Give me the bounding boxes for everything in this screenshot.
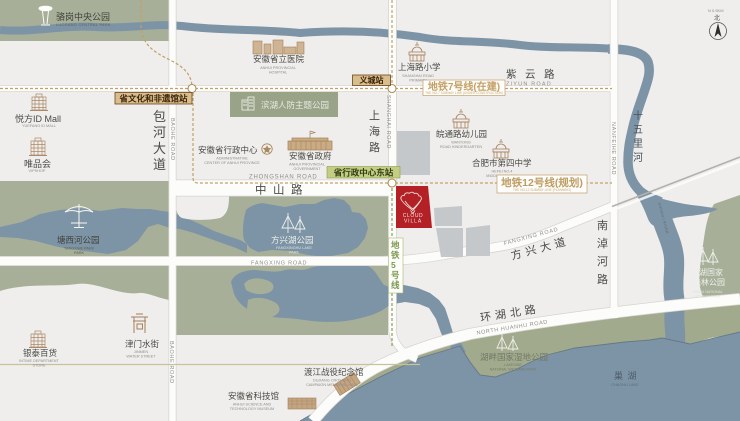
svg-text:安徽省政府: 安徽省政府 xyxy=(289,151,332,161)
svg-text:安徽省立医院: 安徽省立医院 xyxy=(253,54,305,64)
svg-text:CHAOHU LAKE: CHAOHU LAKE xyxy=(611,383,639,387)
svg-text:WANTONG: WANTONG xyxy=(451,141,471,145)
svg-text:ANHUI SCIENCE AND: ANHUI SCIENCE AND xyxy=(233,403,272,407)
svg-text:线: 线 xyxy=(391,280,400,290)
svg-text:ZIYUN ROAD: ZIYUN ROAD xyxy=(506,82,552,88)
svg-text:皖通路幼儿园: 皖通路幼儿园 xyxy=(436,129,487,139)
svg-text:SHANGHAI ROAD: SHANGHAI ROAD xyxy=(402,74,434,78)
svg-text:森林公园: 森林公园 xyxy=(693,277,725,287)
svg-text:LUOGANG CENTRAL PARK: LUOGANG CENTRAL PARK xyxy=(56,23,111,27)
svg-text:ROAD KINDERGARTEN: ROAD KINDERGARTEN xyxy=(440,145,482,149)
svg-text:安徽省科技馆: 安徽省科技馆 xyxy=(228,391,279,401)
svg-text:津门水街: 津门水街 xyxy=(125,339,160,349)
svg-text:上: 上 xyxy=(369,109,380,122)
svg-text:SHANGHAI ROAD: SHANGHAI ROAD xyxy=(385,95,391,149)
svg-text:FANGXING ROAD: FANGXING ROAD xyxy=(251,261,307,267)
svg-text:LAKESIDE: LAKESIDE xyxy=(504,363,522,367)
svg-text:TECHNOLOGY MUSEUM: TECHNOLOGY MUSEUM xyxy=(230,407,274,411)
svg-text:HEFEI NO.4: HEFEI NO.4 xyxy=(491,170,512,174)
svg-text:THE NO.12 SUBWAY LINE (PLANNIN: THE NO.12 SUBWAY LINE (PLANNING) xyxy=(513,188,571,192)
svg-text:大: 大 xyxy=(153,141,166,156)
svg-text:路: 路 xyxy=(597,273,608,286)
svg-text:上海路小学: 上海路小学 xyxy=(398,62,441,72)
svg-text:JINMEN: JINMEN xyxy=(134,350,148,354)
svg-text:NANFEIHE ROAD: NANFEIHE ROAD xyxy=(610,122,616,175)
svg-text:STORE: STORE xyxy=(32,364,45,368)
svg-text:银泰百货: 银泰百货 xyxy=(23,348,58,358)
svg-text:YUEFANG ID MALL: YUEFANG ID MALL xyxy=(22,124,56,128)
svg-text:VILLA: VILLA xyxy=(404,219,422,225)
svg-text:PARK: PARK xyxy=(74,251,85,255)
svg-text:BINHU NATIONAL: BINHU NATIONAL xyxy=(693,290,723,294)
svg-text:中山路: 中山路 xyxy=(255,183,309,197)
svg-text:滨湖国家: 滨湖国家 xyxy=(691,267,723,277)
svg-text:河: 河 xyxy=(633,152,643,164)
svg-text:唯品会: 唯品会 xyxy=(24,158,51,169)
svg-text:河: 河 xyxy=(153,125,166,140)
svg-text:方兴湖公园: 方兴湖公园 xyxy=(271,235,314,245)
svg-text:CAMPAIGN MEMORIAL HALL: CAMPAIGN MEMORIAL HALL xyxy=(306,383,358,387)
svg-text:淖: 淖 xyxy=(597,236,608,250)
svg-text:ADMINISTRATIVE: ADMINISTRATIVE xyxy=(216,157,248,161)
svg-text:FANGXINGHU LAKE: FANGXINGHU LAKE xyxy=(276,246,312,250)
svg-text:INTIME DEPARTMENT: INTIME DEPARTMENT xyxy=(19,359,59,363)
svg-text:地: 地 xyxy=(391,240,400,250)
svg-text:塘西河公园: 塘西河公园 xyxy=(57,235,100,245)
svg-text:铁: 铁 xyxy=(391,250,400,260)
svg-text:义城站: 义城站 xyxy=(359,75,384,85)
svg-text:VIPSHOP: VIPSHOP xyxy=(29,169,46,173)
svg-text:悦方ID Mall: 悦方ID Mall xyxy=(15,113,61,124)
svg-text:DUJIANG CROSSING: DUJIANG CROSSING xyxy=(313,379,351,383)
svg-text:ANHUI PROVINCIAL: ANHUI PROVINCIAL xyxy=(289,163,325,167)
svg-text:NATIONAL WETLAND PARK: NATIONAL WETLAND PARK xyxy=(490,368,537,372)
svg-text:THE NO.7 SUBWAY LINE (UNDER CO: THE NO.7 SUBWAY LINE (UNDER CONSTRUCTION… xyxy=(425,91,503,95)
svg-text:海: 海 xyxy=(369,124,380,138)
svg-text:号: 号 xyxy=(391,270,400,280)
svg-text:北: 北 xyxy=(714,14,720,22)
svg-text:CENTER OF ANHUI PROVINCE: CENTER OF ANHUI PROVINCE xyxy=(204,161,260,165)
svg-text:N 0.5KM: N 0.5KM xyxy=(708,8,724,13)
svg-text:WATER STREET: WATER STREET xyxy=(126,355,156,359)
svg-text:HOSPITAL: HOSPITAL xyxy=(269,71,288,75)
svg-text:合肥市第四中学: 合肥市第四中学 xyxy=(472,158,532,168)
svg-text:路: 路 xyxy=(369,141,380,154)
svg-text:道: 道 xyxy=(153,157,166,172)
svg-text:省行政中心东站: 省行政中心东站 xyxy=(333,168,394,178)
svg-text:TANGXIHE PARK: TANGXIHE PARK xyxy=(64,247,95,251)
svg-text:渡江战役纪念馆: 渡江战役纪念馆 xyxy=(304,367,364,377)
svg-text:南: 南 xyxy=(597,219,608,232)
svg-text:省文化和非遗馆站: 省文化和非遗馆站 xyxy=(118,94,188,104)
svg-text:里: 里 xyxy=(633,138,643,150)
svg-text:河: 河 xyxy=(597,255,608,268)
svg-text:滨湖人防主题公园: 滨湖人防主题公园 xyxy=(261,100,329,110)
svg-text:紫云路: 紫云路 xyxy=(506,68,563,81)
svg-text:BAOHE ROAD: BAOHE ROAD xyxy=(169,118,175,161)
svg-text:ANHUI PROVINCIAL: ANHUI PROVINCIAL xyxy=(260,66,296,70)
svg-text:包: 包 xyxy=(153,109,166,124)
svg-text:湖畔国家湿地公园: 湖畔国家湿地公园 xyxy=(480,352,548,362)
svg-text:FOREST PARK: FOREST PARK xyxy=(695,295,721,299)
svg-text:安徽省行政中心: 安徽省行政中心 xyxy=(198,145,258,155)
svg-text:巢湖: 巢湖 xyxy=(614,370,641,381)
svg-text:PARK: PARK xyxy=(289,251,300,255)
svg-text:十: 十 xyxy=(633,109,643,122)
svg-text:五: 五 xyxy=(633,125,643,136)
svg-text:骆岗中央公园: 骆岗中央公园 xyxy=(56,11,110,22)
svg-text:ZHONGSHAN ROAD: ZHONGSHAN ROAD xyxy=(249,175,318,181)
svg-text:5: 5 xyxy=(391,260,396,270)
svg-text:GOVERNMENT: GOVERNMENT xyxy=(293,167,321,171)
svg-text:BAOHE ROAD: BAOHE ROAD xyxy=(168,341,174,384)
